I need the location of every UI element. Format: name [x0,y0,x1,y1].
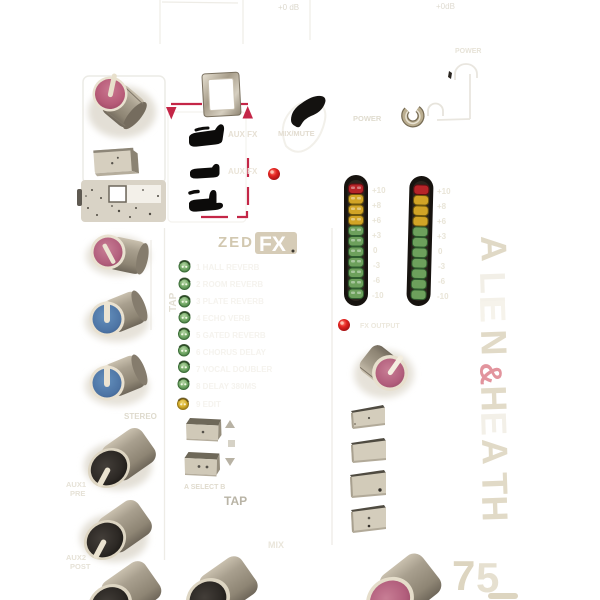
svg-text:L: L [472,271,514,294]
svg-text:T: T [474,472,516,495]
svg-text:7: 7 [452,552,475,599]
svg-text:A: A [474,438,516,465]
svg-text:E: E [473,411,515,436]
svg-text:8 DELAY 380MS: 8 DELAY 380MS [196,382,257,391]
svg-text:+0 dB: +0 dB [278,3,299,12]
svg-text:MIX/MUTE: MIX/MUTE [278,129,315,138]
svg-text:+10: +10 [372,186,386,195]
svg-text:A: A [473,235,515,262]
svg-text:POWER: POWER [353,114,382,123]
svg-text:H: H [473,385,515,412]
svg-text:TAP: TAP [224,494,247,508]
svg-text:TAP: TAP [168,292,179,312]
svg-text:1 HALL REVERB: 1 HALL REVERB [196,263,260,272]
svg-text:A SELECT B: A SELECT B [184,484,225,491]
svg-text:AUX FX: AUX FX [228,130,258,139]
svg-text:+0dB: +0dB [436,2,455,11]
svg-text:0: 0 [438,247,443,256]
svg-text:6 CHORUS DELAY: 6 CHORUS DELAY [196,348,267,357]
svg-text:POWER: POWER [455,48,481,55]
svg-text:+3: +3 [372,231,382,240]
svg-text:-10: -10 [372,291,384,300]
svg-text:0: 0 [373,246,378,255]
svg-text:&: & [473,362,509,386]
svg-text:+3: +3 [437,232,447,241]
svg-text:E: E [472,298,514,323]
svg-text:MIX: MIX [268,540,284,550]
svg-text:FX: FX [259,233,286,256]
svg-text:-10: -10 [437,292,449,301]
svg-text:3 PLATE REVERB: 3 PLATE REVERB [196,297,264,306]
svg-text:STEREO: STEREO [124,412,157,421]
svg-text:2 ROOM REVERB: 2 ROOM REVERB [196,280,263,289]
svg-text:+8: +8 [372,201,382,210]
svg-text:+8: +8 [437,202,447,211]
svg-text:9 EDIT: 9 EDIT [196,400,221,409]
svg-text:AUX2 POST: AUX2 POST [66,553,91,571]
svg-text:AUX FX: AUX FX [228,167,258,176]
svg-text:ZED: ZED [218,234,254,251]
svg-text:4 ECHO VERB: 4 ECHO VERB [196,314,250,323]
svg-text:+10: +10 [437,187,451,196]
svg-text:+6: +6 [437,217,447,226]
svg-text:-3: -3 [438,262,446,271]
svg-text:+6: +6 [372,216,382,225]
svg-text:N: N [473,329,515,356]
svg-text:7 VOCAL DOUBLER: 7 VOCAL DOUBLER [196,365,273,374]
svg-text:FX OUTPUT: FX OUTPUT [360,323,400,330]
svg-text:-6: -6 [438,277,446,286]
svg-text:-6: -6 [373,276,381,285]
svg-text:-3: -3 [373,261,381,270]
svg-text:5 GATED REVERB: 5 GATED REVERB [196,331,266,340]
svg-text:AUX1 PRE: AUX1 PRE [66,480,88,498]
svg-text:H: H [474,495,516,522]
